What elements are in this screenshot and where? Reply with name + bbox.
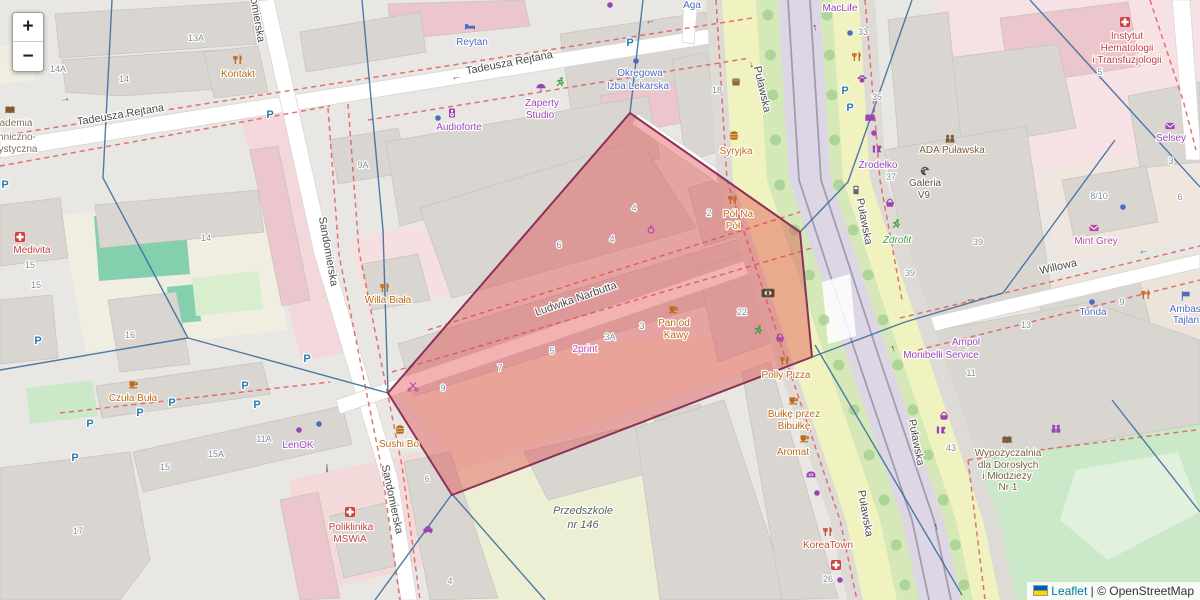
cafe-icon bbox=[789, 397, 798, 404]
house-number: 14 bbox=[119, 74, 129, 84]
poi-label: hniczno- bbox=[0, 132, 36, 143]
book-icon bbox=[1002, 436, 1011, 443]
poi-label: Kontakt bbox=[221, 69, 255, 80]
house-number: 37 bbox=[886, 172, 896, 182]
tree bbox=[950, 540, 961, 551]
poi-label: Pół Na bbox=[723, 209, 753, 220]
dot-icon bbox=[847, 30, 853, 36]
svg-text:P: P bbox=[846, 102, 853, 114]
poi-label: Selsey bbox=[1156, 133, 1186, 144]
poi-label: Instytut bbox=[1111, 31, 1143, 42]
shop-icon bbox=[732, 78, 741, 85]
bank-icon bbox=[762, 289, 775, 297]
house-number: 4 bbox=[631, 203, 636, 213]
P-icon: P bbox=[241, 380, 248, 392]
svg-text:P: P bbox=[241, 380, 248, 392]
house-number: 6 bbox=[1177, 192, 1182, 202]
cross-icon bbox=[831, 560, 841, 570]
poi-label: Hematologii bbox=[1101, 43, 1154, 54]
poi-label: Okręgowa bbox=[617, 68, 663, 79]
house-number: 18 bbox=[712, 85, 722, 95]
poi-label: Polly Pizza bbox=[762, 370, 811, 381]
P-icon: P bbox=[266, 109, 273, 121]
poi-label: Audioforte bbox=[436, 122, 482, 133]
P-icon: P bbox=[841, 85, 848, 97]
cross-icon bbox=[15, 232, 25, 242]
arrow-icon: ← bbox=[450, 71, 462, 84]
poi-label: Pół bbox=[726, 221, 741, 232]
tree bbox=[864, 450, 875, 461]
house-number: 33 bbox=[858, 27, 868, 37]
poi-label: i Młodzieży bbox=[982, 471, 1031, 482]
dot-icon bbox=[435, 115, 441, 121]
house-number: 5 bbox=[549, 346, 554, 356]
house-number: 43 bbox=[946, 443, 956, 453]
tree bbox=[879, 495, 890, 506]
envelope-icon bbox=[1089, 225, 1098, 231]
tram-icon bbox=[853, 186, 858, 194]
arrow-icon: → bbox=[59, 93, 71, 105]
house-number: 22 bbox=[737, 307, 747, 317]
P-icon: P bbox=[1, 179, 8, 191]
dot-icon bbox=[1120, 204, 1126, 210]
svg-text:P: P bbox=[168, 397, 175, 409]
house-number: 39 bbox=[905, 268, 915, 278]
house-number: 11 bbox=[966, 368, 975, 378]
tree bbox=[892, 360, 903, 371]
tree bbox=[907, 405, 918, 416]
tree bbox=[829, 135, 840, 146]
map-canvas[interactable]: PPPPPPPPPPPPP→←←→←←↑↑↑ Tadeusza RejtanaT… bbox=[0, 0, 1200, 600]
tree bbox=[826, 90, 837, 101]
house-number: 6 bbox=[424, 474, 429, 484]
poi-label: Sushi Bo bbox=[379, 439, 419, 450]
tree bbox=[765, 50, 776, 61]
tree bbox=[824, 50, 835, 61]
house-number: 4 bbox=[609, 234, 614, 244]
house-number: 4 bbox=[447, 576, 452, 586]
P-icon: P bbox=[253, 399, 260, 411]
svg-text:P: P bbox=[1, 179, 8, 191]
P-icon: P bbox=[168, 397, 175, 409]
tree bbox=[958, 580, 969, 591]
tree bbox=[774, 180, 785, 191]
poi-label: Nr 1 bbox=[999, 482, 1018, 493]
house-number: 5 bbox=[1097, 67, 1102, 77]
poi-label: Studio bbox=[526, 110, 555, 121]
ukraine-flag-icon bbox=[1033, 585, 1048, 596]
poi-label: nr 146 bbox=[567, 519, 599, 531]
svg-text:P: P bbox=[136, 407, 143, 419]
tree bbox=[877, 315, 888, 326]
svg-text:P: P bbox=[303, 353, 310, 365]
tree bbox=[762, 10, 773, 21]
poi-label: ADA Puławska bbox=[919, 145, 985, 156]
svg-text:P: P bbox=[253, 399, 260, 411]
poi-label: Tajlan bbox=[1173, 315, 1199, 326]
speaker-icon bbox=[449, 109, 455, 118]
poi-label: Syryjka bbox=[720, 146, 753, 157]
poi-label: Zaperty bbox=[525, 98, 559, 109]
cross-icon bbox=[1120, 17, 1130, 27]
arrow-icon: ← bbox=[644, 15, 656, 28]
house-number: 9A bbox=[357, 160, 368, 170]
poi-label: Zdrofit bbox=[882, 235, 913, 246]
house-number: 9 bbox=[1119, 297, 1124, 307]
house-number: 2 bbox=[706, 208, 711, 218]
dot-icon bbox=[1089, 299, 1095, 305]
house-number: 3 bbox=[1168, 156, 1173, 166]
P-icon: P bbox=[846, 102, 853, 114]
svg-text:P: P bbox=[34, 335, 41, 347]
poi-label: Aga bbox=[683, 0, 701, 11]
poi-label: Bułkę przez bbox=[768, 409, 820, 420]
house-number: 15 bbox=[25, 260, 35, 270]
house-number: 11A bbox=[256, 434, 271, 444]
poi-label: Źrodełko bbox=[859, 158, 898, 171]
poi-label: Izba Lekarska bbox=[607, 81, 670, 92]
attribution-separator: | bbox=[1087, 584, 1097, 598]
house-number: 17 bbox=[73, 526, 83, 536]
zoom-in-button[interactable]: + bbox=[13, 13, 43, 42]
tree bbox=[848, 225, 859, 236]
house-number: 8/10 bbox=[1090, 191, 1108, 201]
poi-label: Kawy bbox=[664, 330, 688, 341]
poi-label: Galeria bbox=[909, 178, 942, 189]
poi-label: Pan od bbox=[658, 318, 690, 329]
burger-icon bbox=[396, 425, 404, 434]
tree bbox=[863, 270, 874, 281]
P-icon: P bbox=[303, 353, 310, 365]
svg-text:P: P bbox=[86, 418, 93, 430]
house-number: 14 bbox=[201, 233, 211, 243]
tree bbox=[938, 495, 949, 506]
poi-label: Medivita bbox=[13, 245, 51, 256]
tree bbox=[833, 180, 844, 191]
cafe-icon bbox=[129, 381, 138, 388]
dot-icon bbox=[316, 421, 322, 427]
house-number: 13 bbox=[1021, 320, 1031, 330]
house-number: 3 bbox=[639, 321, 644, 331]
burger-icon bbox=[730, 131, 738, 140]
poi-label: Mint Grey bbox=[1074, 236, 1117, 247]
osm-copyright: © OpenStreetMap bbox=[1097, 584, 1194, 598]
house-number: 7 bbox=[497, 363, 502, 373]
poi-label: dla Dorosłych bbox=[978, 460, 1039, 471]
cafe-icon bbox=[800, 435, 809, 442]
house-number: 26 bbox=[823, 574, 833, 584]
poi-label: 2print bbox=[572, 344, 597, 355]
house-number: 15A bbox=[208, 449, 224, 459]
dot-icon bbox=[633, 58, 639, 64]
tree bbox=[899, 580, 910, 591]
svg-text:←: ← bbox=[644, 15, 656, 28]
svg-text:→: → bbox=[59, 93, 71, 105]
house-number: 15 bbox=[160, 462, 170, 472]
cafe-icon bbox=[669, 306, 678, 313]
poi-label: ademia bbox=[0, 118, 33, 129]
envelope-icon bbox=[1165, 123, 1174, 129]
svg-text:←: ← bbox=[450, 71, 462, 84]
P-icon: P bbox=[86, 418, 93, 430]
tree bbox=[891, 540, 902, 551]
P-icon: P bbox=[136, 407, 143, 419]
poi-label: Bibułkę bbox=[778, 421, 811, 432]
dot-icon bbox=[837, 577, 843, 583]
tree bbox=[833, 360, 844, 371]
leaflet-link[interactable]: Leaflet bbox=[1051, 584, 1087, 598]
poi-label: Przedszkole bbox=[553, 505, 613, 517]
house-number: 6 bbox=[556, 240, 561, 250]
poi-label: Wypożyczalnia bbox=[975, 448, 1042, 459]
svg-text:P: P bbox=[266, 109, 273, 121]
poi-label: LenOK bbox=[282, 440, 313, 451]
poi-label: Ampol bbox=[952, 337, 980, 348]
poi-label: KoreaTown bbox=[803, 540, 853, 551]
tree bbox=[818, 315, 829, 326]
poi-label: V9 bbox=[918, 190, 931, 201]
tree bbox=[770, 135, 781, 146]
house-number: 14A bbox=[50, 64, 66, 74]
poi-label: Poliklinika bbox=[329, 522, 374, 533]
zoom-out-button[interactable]: − bbox=[13, 42, 43, 71]
P-icon: P bbox=[626, 37, 633, 49]
house-number: 13A bbox=[188, 33, 204, 43]
dot-icon bbox=[296, 427, 302, 433]
zoom-control: + − bbox=[12, 12, 44, 72]
poi-label: Monibelli Service bbox=[903, 350, 979, 361]
cross-icon bbox=[345, 507, 355, 517]
poi-label: Reytan bbox=[456, 37, 488, 48]
house-number: 15 bbox=[31, 280, 41, 290]
svg-text:P: P bbox=[71, 452, 78, 464]
P-icon: P bbox=[34, 335, 41, 347]
poi-label: Ambasa bbox=[1170, 304, 1200, 315]
book-icon bbox=[865, 114, 874, 121]
map-svg: PPPPPPPPPPPPP→←←→←←↑↑↑ Tadeusza RejtanaT… bbox=[0, 0, 1200, 600]
house-number: 39 bbox=[973, 237, 983, 247]
poi-label: MacLife bbox=[822, 3, 857, 14]
poi-label: Tonda bbox=[1079, 307, 1107, 318]
house-number: 3A bbox=[604, 332, 615, 342]
house-number: 9 bbox=[440, 383, 445, 393]
book-icon bbox=[5, 106, 14, 113]
P-icon: P bbox=[71, 452, 78, 464]
house-number: 16 bbox=[125, 330, 135, 340]
poi-label: ystyczna bbox=[0, 144, 38, 155]
poi-label: MSWiA bbox=[333, 534, 367, 545]
poi-label: Aromat bbox=[777, 447, 809, 458]
poi-label: i Transfuzjologii bbox=[1093, 55, 1162, 66]
dot-icon bbox=[814, 490, 820, 496]
svg-text:P: P bbox=[841, 85, 848, 97]
attribution-bar: Leaflet | © OpenStreetMap bbox=[1027, 582, 1200, 600]
svg-text:P: P bbox=[626, 37, 633, 49]
dot-icon bbox=[871, 130, 877, 136]
poi-label: Willa Biała bbox=[365, 295, 412, 306]
house-number: 35 bbox=[872, 92, 882, 102]
poi-label: Czuła Buła bbox=[109, 393, 158, 404]
dot-icon bbox=[607, 2, 613, 8]
